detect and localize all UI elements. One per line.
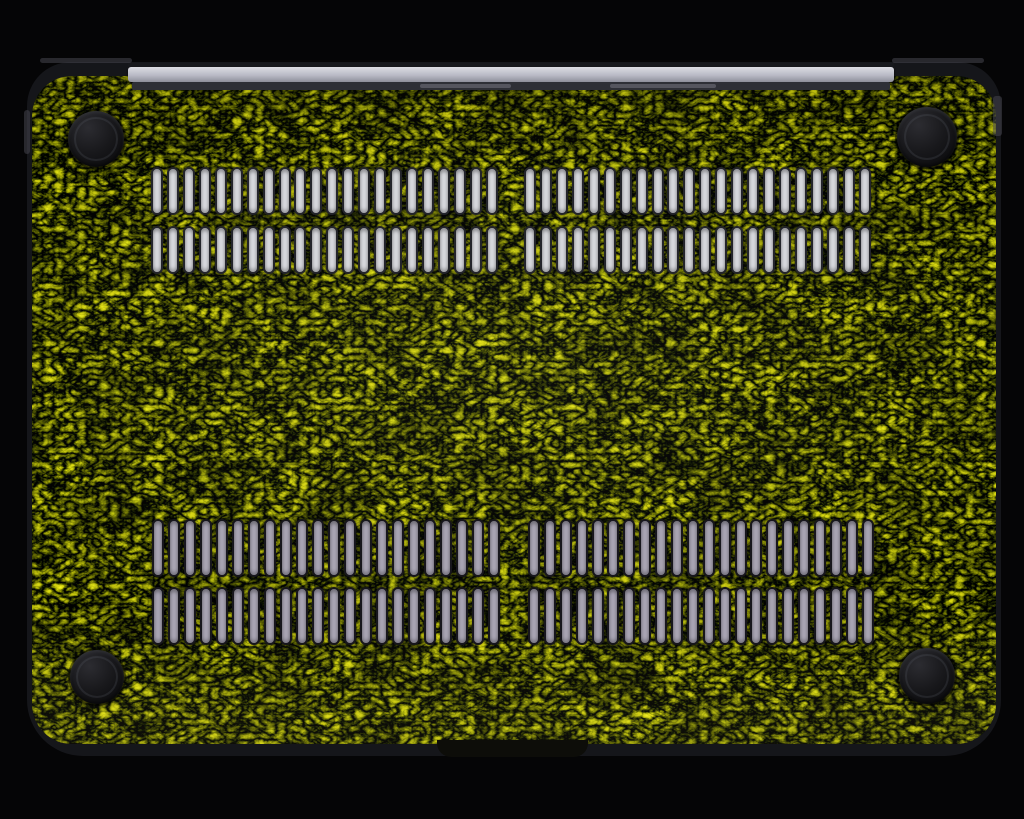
vent-slot (811, 167, 823, 215)
vent-slot (215, 167, 227, 215)
vent-slot (326, 226, 338, 274)
hinge-clutch-bar (128, 63, 894, 90)
vent-slot (620, 167, 632, 215)
vent-slot (750, 587, 762, 645)
vent-slot (766, 587, 778, 645)
vent-slot (408, 519, 420, 577)
vent-slot (731, 167, 743, 215)
vent-slot (779, 167, 791, 215)
vent-slot (470, 167, 482, 215)
vent-slot (683, 226, 695, 274)
right-edge-step-notch (993, 96, 1002, 136)
front-lip-notch (437, 740, 588, 757)
vent-slot (326, 167, 338, 215)
vent-slot (540, 167, 552, 215)
vent-slot (814, 587, 826, 645)
vent-slot (747, 226, 759, 274)
vent-slot (280, 587, 292, 645)
vent-slot (655, 587, 667, 645)
vent-slot (232, 587, 244, 645)
vent-slot (795, 167, 807, 215)
vent-slot (280, 519, 292, 577)
vent-slot (560, 519, 572, 577)
vent-slot (576, 519, 588, 577)
vent-slot (215, 226, 227, 274)
vent-slot (655, 519, 667, 577)
vent-slot (843, 167, 855, 215)
vent-slot (374, 226, 386, 274)
vent-slot (183, 226, 195, 274)
vent-slot (392, 519, 404, 577)
vent-slot (344, 519, 356, 577)
vent-slot (406, 226, 418, 274)
vent-slot (358, 167, 370, 215)
vent-slot (798, 587, 810, 645)
vent-row (524, 167, 871, 215)
vent-slot (715, 226, 727, 274)
vent-slot (279, 226, 291, 274)
vent-slot (687, 587, 699, 645)
vent-slot (472, 519, 484, 577)
vent-slot (216, 519, 228, 577)
vent-slot (830, 519, 842, 577)
vent-slot (671, 587, 683, 645)
vent-slot (763, 226, 775, 274)
vent-slot (294, 167, 306, 215)
vent-slot (572, 226, 584, 274)
vent-slot (671, 519, 683, 577)
vent-slot (376, 587, 388, 645)
vent-slot (795, 226, 807, 274)
hinge-silver-bar (128, 67, 894, 82)
vent-slot (623, 587, 635, 645)
top-edge-rim-highlight-right (892, 58, 984, 63)
vent-slot (524, 226, 536, 274)
vent-slot (424, 519, 436, 577)
vent-slot (294, 226, 306, 274)
vent-slot (544, 587, 556, 645)
rubber-foot-top-right (897, 107, 957, 167)
vent-slot (607, 587, 619, 645)
vent-slot (390, 226, 402, 274)
vent-slot (279, 167, 291, 215)
vent-slot (572, 167, 584, 215)
vent-slot (843, 226, 855, 274)
vent-slot (830, 587, 842, 645)
photo-stage (0, 0, 1024, 819)
vent-row (524, 226, 871, 274)
vent-slot (798, 519, 810, 577)
vent-slot (544, 519, 556, 577)
vent-slot (719, 519, 731, 577)
vent-slot (440, 587, 452, 645)
vent-slot (310, 167, 322, 215)
vent-slot (296, 519, 308, 577)
vent-slot (731, 226, 743, 274)
vent-slot (782, 587, 794, 645)
vent-slot (763, 167, 775, 215)
vent-row (151, 167, 498, 215)
vent-row (151, 226, 498, 274)
hinge-groove-segment-2 (610, 84, 716, 88)
vent-slot (248, 519, 260, 577)
rubber-foot-top-left (68, 111, 124, 167)
vent-slot (588, 226, 600, 274)
vent-slot (231, 167, 243, 215)
vent-slot (859, 167, 871, 215)
vent-slot (703, 587, 715, 645)
vent-slot (750, 519, 762, 577)
vent-slot (472, 587, 484, 645)
vent-slot (248, 587, 260, 645)
rubber-foot-bottom-left (70, 650, 124, 704)
vent-slot (652, 167, 664, 215)
rubber-foot-bottom-right (899, 648, 955, 704)
vent-slot (528, 519, 540, 577)
vent-slot (699, 167, 711, 215)
vent-slot (846, 587, 858, 645)
vent-slot (528, 587, 540, 645)
left-edge-step-notch (24, 110, 30, 154)
vent-slot (247, 226, 259, 274)
vent-slot (390, 167, 402, 215)
vent-slot (488, 587, 500, 645)
vent-slot (263, 167, 275, 215)
hinge-groove-segment-1 (420, 84, 511, 88)
vent-slot (422, 167, 434, 215)
vent-slot (152, 519, 164, 577)
vent-slot (310, 226, 322, 274)
vent-slot (470, 226, 482, 274)
vent-slot (167, 226, 179, 274)
vent-row (528, 519, 874, 577)
vent-slot (779, 226, 791, 274)
vent-slot (438, 167, 450, 215)
vent-slot (486, 167, 498, 215)
vent-slot (360, 519, 372, 577)
vent-slot (862, 519, 874, 577)
vent-slot (200, 519, 212, 577)
vent-slot (168, 519, 180, 577)
vent-slot (699, 226, 711, 274)
vent-slot (827, 226, 839, 274)
vent-group-top-left (151, 167, 498, 274)
vent-slot (486, 226, 498, 274)
vent-slot (588, 167, 600, 215)
vent-slot (747, 167, 759, 215)
vent-slot (199, 167, 211, 215)
vent-slot (231, 226, 243, 274)
vent-row (152, 519, 500, 577)
vent-slot (524, 167, 536, 215)
vent-slot (456, 519, 468, 577)
vent-slot (216, 587, 228, 645)
vent-slot (719, 587, 731, 645)
vent-slot (636, 167, 648, 215)
vent-slot (623, 519, 635, 577)
vent-slot (604, 226, 616, 274)
vent-slot (859, 226, 871, 274)
vent-slot (438, 226, 450, 274)
vent-slot (358, 226, 370, 274)
vent-group-top-right (524, 167, 871, 274)
hinge-groove (132, 82, 890, 90)
vent-slot (184, 519, 196, 577)
vent-slot (811, 226, 823, 274)
vent-slot (454, 226, 466, 274)
vent-group-bottom-left (152, 519, 500, 645)
vent-slot (560, 587, 572, 645)
vent-group-bottom-right (528, 519, 874, 645)
vent-slot (151, 167, 163, 215)
vent-slot (152, 587, 164, 645)
vent-slot (312, 519, 324, 577)
vent-slot (264, 587, 276, 645)
vent-slot (151, 226, 163, 274)
vent-slot (703, 519, 715, 577)
vent-row (152, 587, 500, 645)
vent-slot (360, 587, 372, 645)
vent-slot (424, 587, 436, 645)
vent-slot (406, 167, 418, 215)
vent-slot (607, 519, 619, 577)
vent-slot (488, 519, 500, 577)
vent-slot (827, 167, 839, 215)
vent-slot (846, 519, 858, 577)
vent-slot (667, 226, 679, 274)
vent-slot (328, 587, 340, 645)
vent-slot (652, 226, 664, 274)
vent-slot (576, 587, 588, 645)
vent-slot (715, 167, 727, 215)
vent-slot (556, 226, 568, 274)
vent-slot (184, 587, 196, 645)
vent-slot (862, 587, 874, 645)
vent-slot (312, 587, 324, 645)
vent-slot (232, 519, 244, 577)
vent-slot (408, 587, 420, 645)
vent-slot (422, 226, 434, 274)
vent-slot (604, 167, 616, 215)
vent-slot (456, 587, 468, 645)
vent-slot (376, 519, 388, 577)
vent-slot (540, 226, 552, 274)
vent-slot (264, 519, 276, 577)
vent-slot (263, 226, 275, 274)
vent-slot (247, 167, 259, 215)
vent-row (528, 587, 874, 645)
vent-slot (344, 587, 356, 645)
vent-slot (296, 587, 308, 645)
vent-slot (392, 587, 404, 645)
vent-slot (328, 519, 340, 577)
vent-slot (592, 587, 604, 645)
vent-slot (183, 167, 195, 215)
vent-slot (639, 519, 651, 577)
vent-slot (667, 167, 679, 215)
vent-slot (440, 519, 452, 577)
vent-slot (636, 226, 648, 274)
vent-slot (592, 519, 604, 577)
vent-slot (766, 519, 778, 577)
vent-slot (342, 167, 354, 215)
vent-slot (168, 587, 180, 645)
vent-slot (735, 587, 747, 645)
vent-slot (735, 519, 747, 577)
vent-slot (639, 587, 651, 645)
vent-slot (556, 167, 568, 215)
vent-slot (199, 226, 211, 274)
vent-slot (454, 167, 466, 215)
vent-slot (683, 167, 695, 215)
vent-slot (167, 167, 179, 215)
vent-slot (687, 519, 699, 577)
vent-slot (782, 519, 794, 577)
vent-slot (620, 226, 632, 274)
vent-slot (200, 587, 212, 645)
vent-slot (374, 167, 386, 215)
top-edge-rim-highlight-left (40, 58, 132, 63)
vent-slot (814, 519, 826, 577)
vent-slot (342, 226, 354, 274)
